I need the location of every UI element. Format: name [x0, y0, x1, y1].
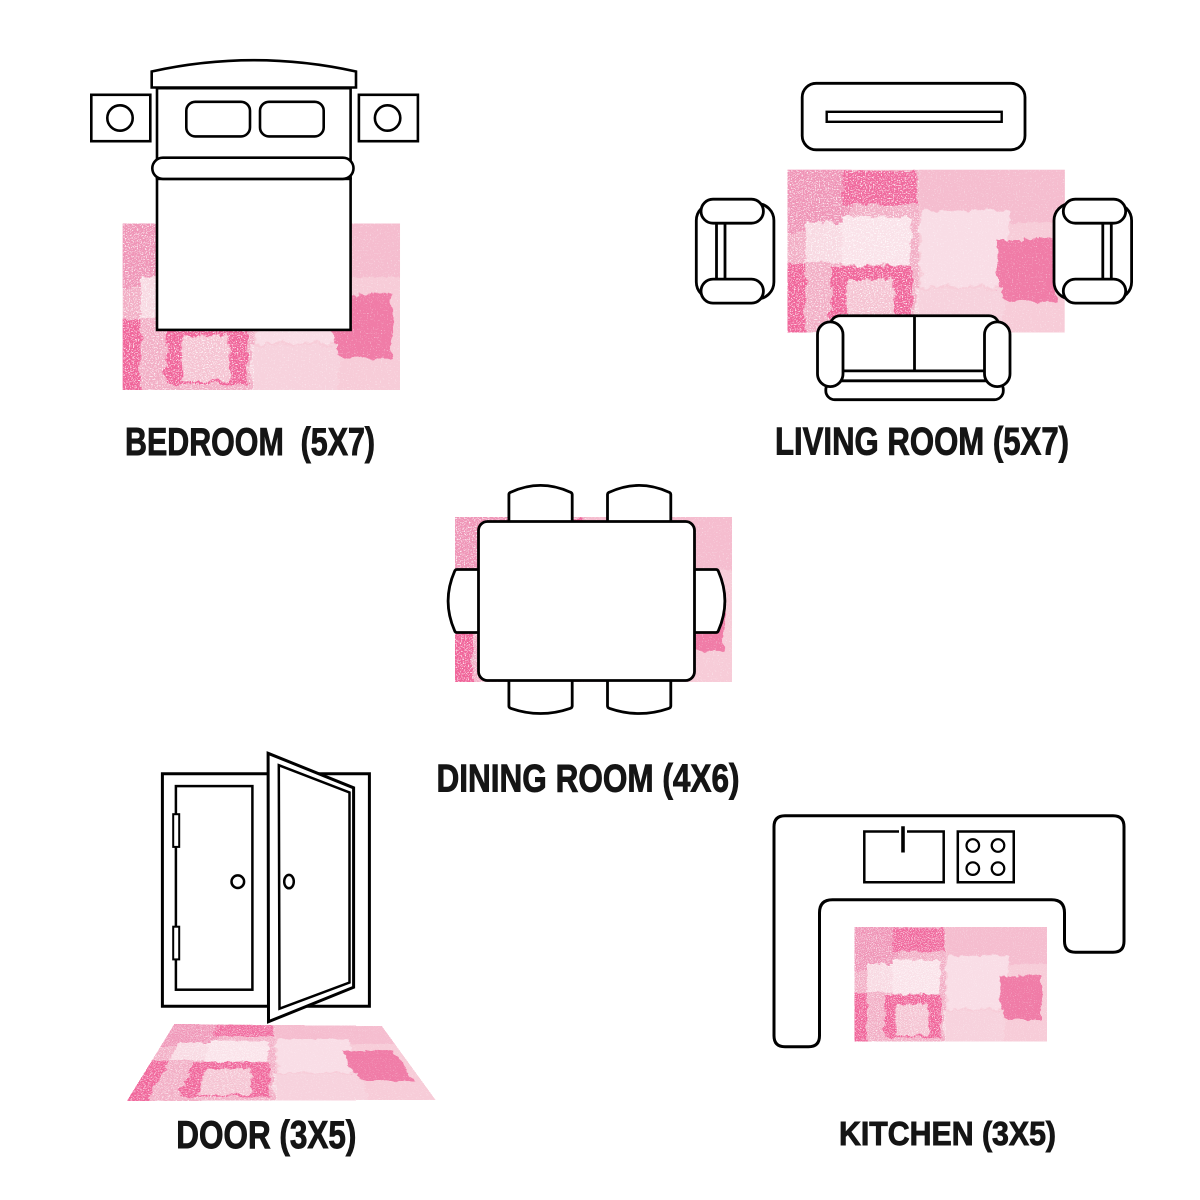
- svg-text:KITCHEN (3X5): KITCHEN (3X5): [839, 1115, 1056, 1152]
- svg-text:BEDROOM (5X7): BEDROOM (5X7): [125, 421, 375, 464]
- svg-text:DINING ROOM (4X6): DINING ROOM (4X6): [437, 758, 740, 801]
- svg-text:DOOR (3X5): DOOR (3X5): [176, 1114, 356, 1157]
- svg-text:LIVING ROOM (5X7): LIVING ROOM (5X7): [775, 421, 1069, 464]
